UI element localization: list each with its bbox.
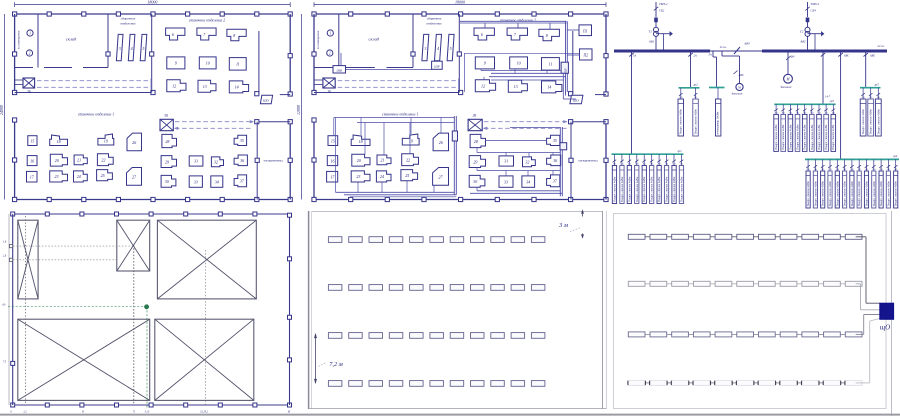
svg-text:35: 35 bbox=[553, 138, 557, 143]
svg-text:Ж: Ж bbox=[287, 411, 291, 414]
svg-text:Зат.насос: Зат.насос bbox=[731, 93, 743, 96]
svg-text:ТМЗ-2: ТМЗ-2 bbox=[811, 2, 820, 6]
svg-text:1с.ш.: 1с.ш. bbox=[719, 45, 726, 49]
svg-text:16: 16 bbox=[331, 158, 335, 163]
svg-text:ЩР: ЩР bbox=[433, 64, 439, 68]
svg-text:16: 16 bbox=[30, 158, 34, 163]
svg-text:отделение: отделение bbox=[120, 22, 136, 26]
svg-text:эл.помещение: эл.помещение bbox=[316, 30, 320, 49]
svg-text:Токарн. станок 4кВт: Токарн. станок 4кВт bbox=[673, 177, 676, 202]
svg-text:71: 71 bbox=[133, 411, 136, 414]
svg-text:Токарн. станок 4кВт: Токарн. станок 4кВт bbox=[895, 181, 898, 206]
svg-text:Токарн. станок 4кВт: Токарн. станок 4кВт bbox=[870, 109, 873, 134]
svg-text:13: 13 bbox=[514, 84, 518, 89]
svg-text:20: 20 bbox=[55, 158, 59, 163]
svg-text:0: 0 bbox=[10, 411, 12, 414]
svg-text:3 м: 3 м bbox=[558, 222, 568, 229]
svg-text:15: 15 bbox=[30, 138, 34, 143]
svg-text:Токарн. станок 4кВт: Токарн. станок 4кВт bbox=[782, 125, 785, 150]
svg-text:25: 25 bbox=[101, 173, 105, 178]
svg-text:33: 33 bbox=[504, 179, 508, 184]
svg-text:4: 4 bbox=[131, 46, 133, 51]
svg-text:Токарн. станок 4кВт: Токарн. станок 4кВт bbox=[628, 177, 631, 202]
svg-text:8: 8 bbox=[546, 33, 548, 38]
svg-text:Токарн. станок 4кВт: Токарн. станок 4кВт bbox=[814, 181, 817, 206]
svg-text:8: 8 bbox=[233, 33, 235, 38]
svg-text:1: 1 bbox=[329, 32, 331, 36]
svg-text:2с.ш.: 2с.ш. bbox=[877, 44, 884, 48]
svg-text:Токарн. станок 4кВт: Токарн. станок 4кВт bbox=[643, 177, 646, 202]
svg-text:Токарн. станок 4кВт: Токарн. станок 4кВт bbox=[804, 125, 807, 150]
svg-text:23: 23 bbox=[55, 174, 59, 179]
svg-text:сборочное: сборочное bbox=[427, 17, 442, 21]
svg-text:30: 30 bbox=[473, 179, 477, 184]
svg-text:Т2: Т2 bbox=[800, 29, 804, 33]
svg-text:R: R bbox=[81, 411, 84, 414]
svg-text:22: 22 bbox=[406, 157, 410, 162]
svg-text:25: 25 bbox=[405, 173, 409, 178]
svg-text:Токарн. станок 4кВт: Токарн. станок 4кВт bbox=[844, 181, 847, 206]
svg-text:Токарн. станок 4кВт: Токарн. станок 4кВт bbox=[775, 125, 778, 150]
svg-text:18000: 18000 bbox=[147, 0, 157, 5]
svg-text:Токарн. станок 4кВт: Токарн. станок 4кВт bbox=[636, 177, 639, 202]
svg-text:13: 13 bbox=[203, 84, 207, 89]
svg-text:35: 35 bbox=[240, 138, 244, 143]
svg-text:36: 36 bbox=[27, 90, 31, 94]
svg-text:4: 4 bbox=[437, 46, 439, 51]
svg-text:33: 33 bbox=[194, 179, 198, 184]
svg-text:1,2: 1,2 bbox=[23, 411, 27, 414]
svg-text:М: М bbox=[786, 78, 791, 82]
svg-text:1: 1 bbox=[29, 32, 31, 36]
svg-text:Токарн. станок 4кВт: Токарн. станок 4кВт bbox=[695, 109, 698, 134]
svg-text:АВС: АВС bbox=[843, 55, 849, 58]
svg-text:22: 22 bbox=[101, 157, 105, 162]
svg-text:12: 12 bbox=[481, 84, 485, 89]
svg-text:отделение: отделение bbox=[426, 22, 442, 26]
svg-text:гр3: гр3 bbox=[829, 99, 834, 103]
svg-text:18000: 18000 bbox=[455, 0, 465, 5]
svg-text:24000: 24000 bbox=[0, 105, 4, 115]
svg-text:Токарн. станок 4кВт: Токарн. станок 4кВт bbox=[877, 109, 880, 134]
svg-text:6: 6 bbox=[481, 32, 483, 37]
svg-text:20: 20 bbox=[357, 158, 361, 163]
svg-text:Токарн. станок 4кВт: Токарн. станок 4кВт bbox=[818, 125, 821, 150]
svg-text:21: 21 bbox=[77, 158, 81, 163]
svg-text:34: 34 bbox=[215, 179, 219, 184]
svg-text:3А: 3А bbox=[708, 54, 711, 57]
svg-text:21: 21 bbox=[380, 158, 384, 163]
svg-text:24: 24 bbox=[380, 174, 384, 179]
svg-text:19: 19 bbox=[104, 139, 108, 144]
svg-text:Токарн. станок 4кВт: Токарн. станок 4кВт bbox=[858, 181, 861, 206]
svg-text:инструментал.: инструментал. bbox=[578, 159, 598, 163]
svg-text:24: 24 bbox=[77, 174, 81, 179]
svg-text:9: 9 bbox=[175, 61, 177, 66]
svg-text:вентилятор 10кВт: вентилятор 10кВт bbox=[716, 112, 719, 135]
svg-text:26: 26 bbox=[439, 140, 443, 145]
svg-text:32: 32 bbox=[214, 160, 218, 165]
svg-text:Токарн. станок 4кВт: Токарн. станок 4кВт bbox=[680, 109, 683, 134]
svg-text:Токарн. станок 4кВт: Токарн. станок 4кВт bbox=[811, 125, 814, 150]
svg-text:П1: П1 bbox=[582, 30, 588, 34]
svg-text:7,5: 7,5 bbox=[3, 361, 7, 364]
svg-text:гр5: гр5 bbox=[874, 83, 879, 87]
svg-text:склад: склад bbox=[369, 37, 380, 42]
svg-text:эл.помещение: эл.помещение bbox=[17, 30, 21, 49]
svg-text:32: 32 bbox=[525, 160, 529, 165]
svg-text:Токарн. станок 4кВт: Токарн. станок 4кВт bbox=[797, 125, 800, 150]
svg-text:18: 18 bbox=[359, 139, 363, 144]
svg-text:гр2: гр2 bbox=[693, 83, 698, 87]
svg-text:3,129,2: 3,129,2 bbox=[200, 411, 208, 414]
svg-text:Токарн. станок 4кВт: Токарн. станок 4кВт bbox=[866, 181, 869, 206]
svg-text:щО: щО bbox=[880, 324, 890, 332]
svg-text:3,13: 3,13 bbox=[145, 411, 150, 414]
svg-text:5: 5 bbox=[143, 46, 145, 51]
svg-text:39: 39 bbox=[473, 114, 477, 118]
svg-text:Токарн. станок 4кВт: Токарн. станок 4кВт bbox=[825, 125, 828, 150]
svg-text:сборочное: сборочное bbox=[121, 17, 136, 21]
svg-text:ЩР: ЩР bbox=[565, 68, 568, 74]
svg-text:18: 18 bbox=[57, 139, 61, 144]
svg-text:34: 34 bbox=[526, 179, 530, 184]
svg-text:Т1: Т1 bbox=[648, 29, 652, 33]
svg-text:станочное отделение 2: станочное отделение 2 bbox=[500, 19, 536, 23]
svg-text:Токарн. станок 4кВт: Токарн. станок 4кВт bbox=[822, 181, 825, 206]
svg-text:11: 11 bbox=[549, 62, 553, 67]
svg-text:10: 10 bbox=[206, 61, 210, 66]
svg-text:4,6: 4,6 bbox=[2, 304, 6, 307]
svg-text:Токарн. станок 4кВт: Токарн. станок 4кВт bbox=[680, 177, 683, 202]
svg-text:ЩО: ЩО bbox=[262, 99, 270, 103]
svg-text:15: 15 bbox=[331, 138, 335, 143]
svg-text:Токарн. станок 4кВт: Токарн. станок 4кВт bbox=[880, 181, 883, 206]
svg-text:станочное отделение 1: станочное отделение 1 bbox=[382, 113, 418, 117]
svg-text:Токарн. станок 4кВт: Токарн. станок 4кВт bbox=[829, 181, 832, 206]
svg-text:Токарн. станок 4кВт: Токарн. станок 4кВт bbox=[651, 177, 654, 202]
svg-text:АВ6: АВ6 bbox=[738, 74, 744, 77]
svg-text:Зат.насос: Зат.насос bbox=[780, 86, 792, 89]
svg-text:7,2 м: 7,2 м bbox=[329, 361, 342, 368]
svg-text:АВЕ: АВЕ bbox=[869, 55, 875, 58]
svg-text:Токарн. станок 4кВт: Токарн. станок 4кВт bbox=[851, 181, 854, 206]
svg-text:39: 39 bbox=[164, 114, 168, 118]
svg-text:28: 28 bbox=[165, 139, 169, 144]
svg-text:Токарн. станок 4кВт: Токарн. станок 4кВт bbox=[807, 181, 810, 206]
svg-text:ТМЗ-1: ТМЗ-1 bbox=[659, 2, 668, 6]
svg-text:29: 29 bbox=[473, 159, 477, 164]
svg-text:1,6: 1,6 bbox=[3, 240, 7, 243]
svg-text:Токарн. станок 4кВт: Токарн. станок 4кВт bbox=[621, 177, 624, 202]
svg-text:Токарн. станок 4кВт: Токарн. станок 4кВт bbox=[613, 177, 616, 202]
svg-text:3: 3 bbox=[424, 46, 426, 51]
svg-text:14: 14 bbox=[547, 85, 551, 90]
svg-text:АВ2: АВ2 bbox=[800, 40, 807, 44]
svg-text:Токарн. станок 4кВт: Токарн. станок 4кВт bbox=[658, 177, 661, 202]
svg-text:гр1: гр1 bbox=[677, 149, 682, 153]
svg-text:АВ4: АВ4 bbox=[789, 56, 795, 59]
svg-text:Токарн. станок 4кВт: Токарн. станок 4кВт bbox=[862, 109, 865, 134]
svg-text:Токарн. станок 4кВт: Токарн. станок 4кВт bbox=[789, 125, 792, 150]
svg-text:12: 12 bbox=[172, 84, 176, 89]
svg-text:2: 2 bbox=[329, 52, 331, 56]
svg-text:П2: П2 bbox=[582, 54, 588, 58]
svg-text:10: 10 bbox=[517, 61, 521, 66]
svg-text:2А: 2А bbox=[693, 55, 696, 58]
svg-text:СБ2: СБ2 bbox=[659, 9, 665, 13]
svg-text:М: М bbox=[737, 86, 741, 90]
svg-text:11: 11 bbox=[236, 62, 240, 67]
svg-text:склад: склад bbox=[66, 37, 77, 42]
svg-text:30: 30 bbox=[165, 179, 169, 184]
svg-text:3: 3 bbox=[119, 46, 121, 51]
svg-text:1А: 1А bbox=[633, 55, 636, 58]
svg-text:Токарн. станок 4кВт: Токарн. станок 4кВт bbox=[832, 125, 835, 150]
svg-text:36: 36 bbox=[328, 90, 332, 94]
svg-text:19: 19 bbox=[409, 139, 413, 144]
svg-text:инструментал.: инструментал. bbox=[264, 159, 284, 163]
svg-text:СБ4: СБ4 bbox=[811, 9, 817, 13]
svg-text:2,6: 2,6 bbox=[3, 254, 7, 257]
svg-text:14: 14 bbox=[235, 85, 239, 90]
svg-text:12000: 12000 bbox=[296, 105, 301, 115]
svg-text:АВ1: АВ1 bbox=[648, 40, 655, 44]
svg-text:ЩВ: ЩВ bbox=[336, 68, 342, 72]
svg-text:31: 31 bbox=[194, 159, 198, 164]
svg-text:31: 31 bbox=[504, 159, 508, 164]
svg-text:9: 9 bbox=[484, 61, 486, 66]
svg-text:5: 5 bbox=[450, 46, 452, 51]
svg-text:36: 36 bbox=[240, 158, 244, 163]
svg-text:29: 29 bbox=[165, 159, 169, 164]
svg-text:26: 26 bbox=[132, 140, 136, 145]
svg-text:АВ9: АВ9 bbox=[743, 42, 750, 46]
svg-text:14-7: 14-7 bbox=[825, 96, 831, 99]
svg-text:23: 23 bbox=[356, 174, 360, 179]
svg-text:станочное отделение 1: станочное отделение 1 bbox=[78, 113, 114, 117]
svg-text:28: 28 bbox=[474, 139, 478, 144]
svg-text:Токарн. станок 4кВт: Токарн. станок 4кВт bbox=[666, 177, 669, 202]
svg-text:станочное отделение 2: станочное отделение 2 bbox=[189, 19, 225, 23]
svg-text:36: 36 bbox=[553, 158, 557, 163]
svg-text:6: 6 bbox=[172, 32, 174, 37]
svg-text:Токарн. станок 4кВт: Токарн. станок 4кВт bbox=[836, 181, 839, 206]
svg-text:2: 2 bbox=[29, 52, 31, 56]
svg-text:Токарн. станок 4кВт: Токарн. станок 4кВт bbox=[887, 181, 890, 206]
svg-text:Токарн. станок 4кВт: Токарн. станок 4кВт bbox=[873, 181, 876, 206]
svg-text:гр4: гр4 bbox=[893, 154, 898, 158]
